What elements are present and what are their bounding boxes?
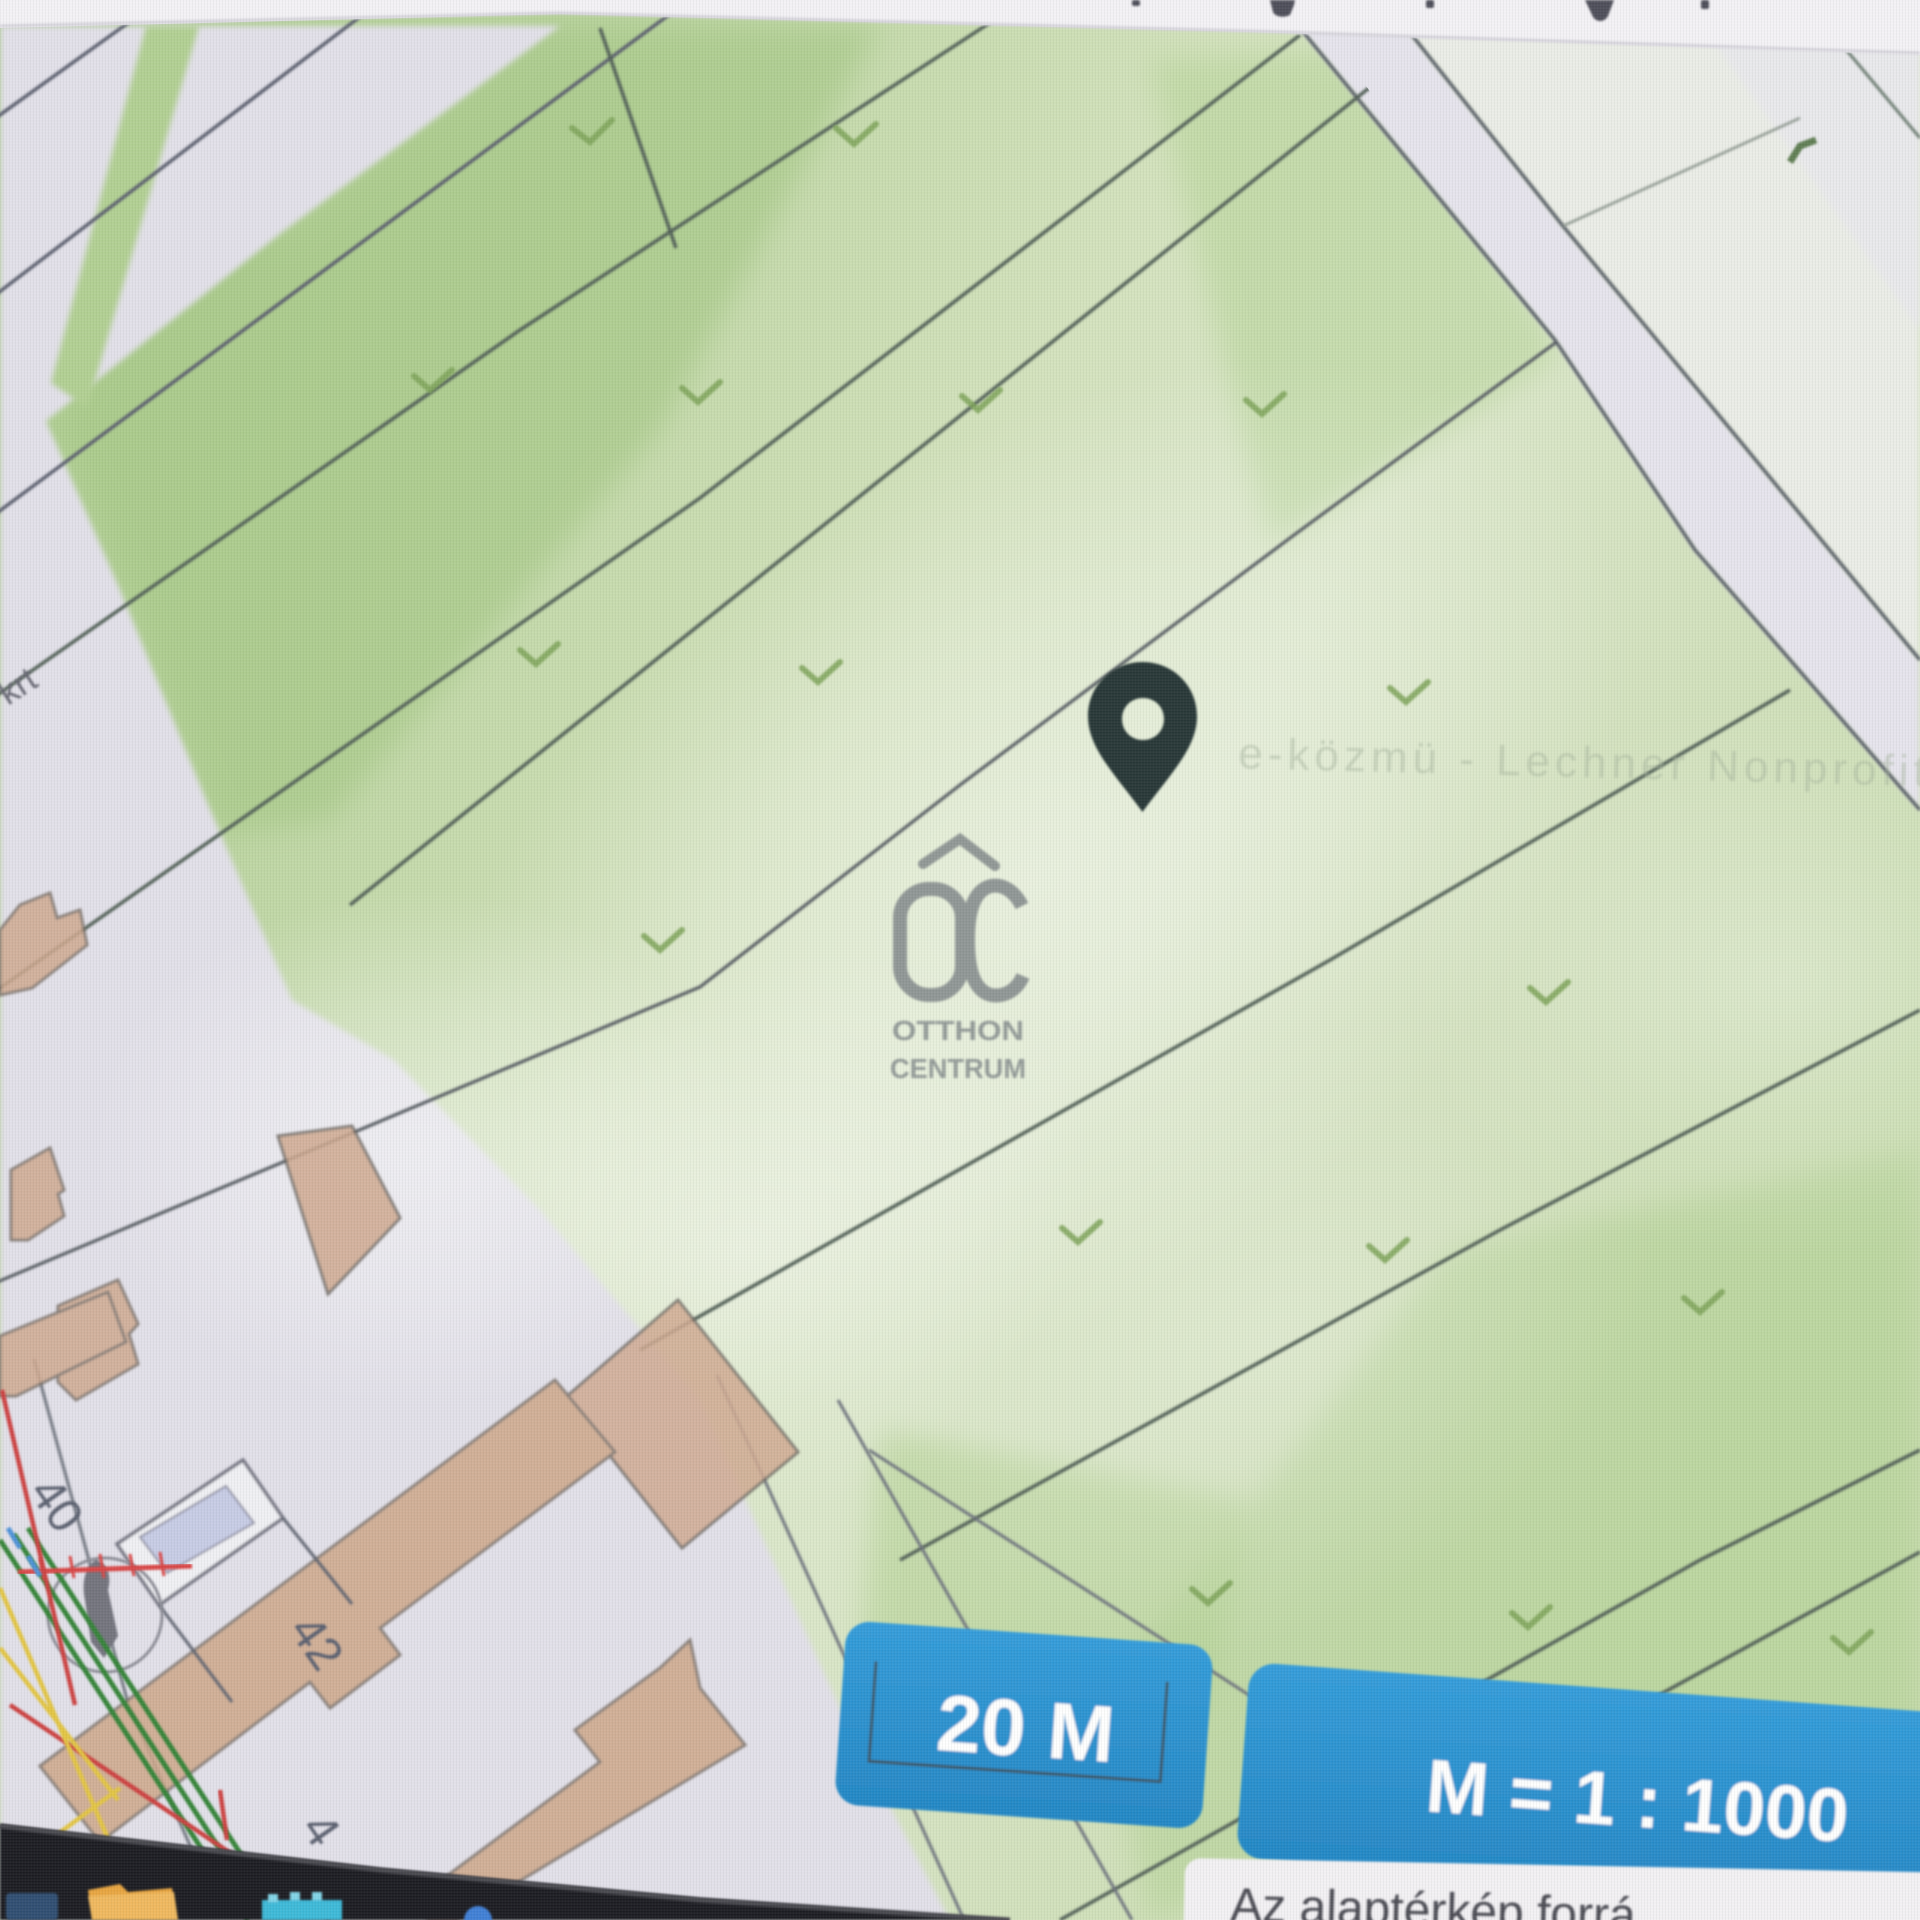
svg-text:OTTHON: OTTHON — [892, 1015, 1024, 1046]
svg-text:CENTRUM: CENTRUM — [890, 1053, 1026, 1084]
svg-text:20 M: 20 M — [934, 1678, 1118, 1779]
